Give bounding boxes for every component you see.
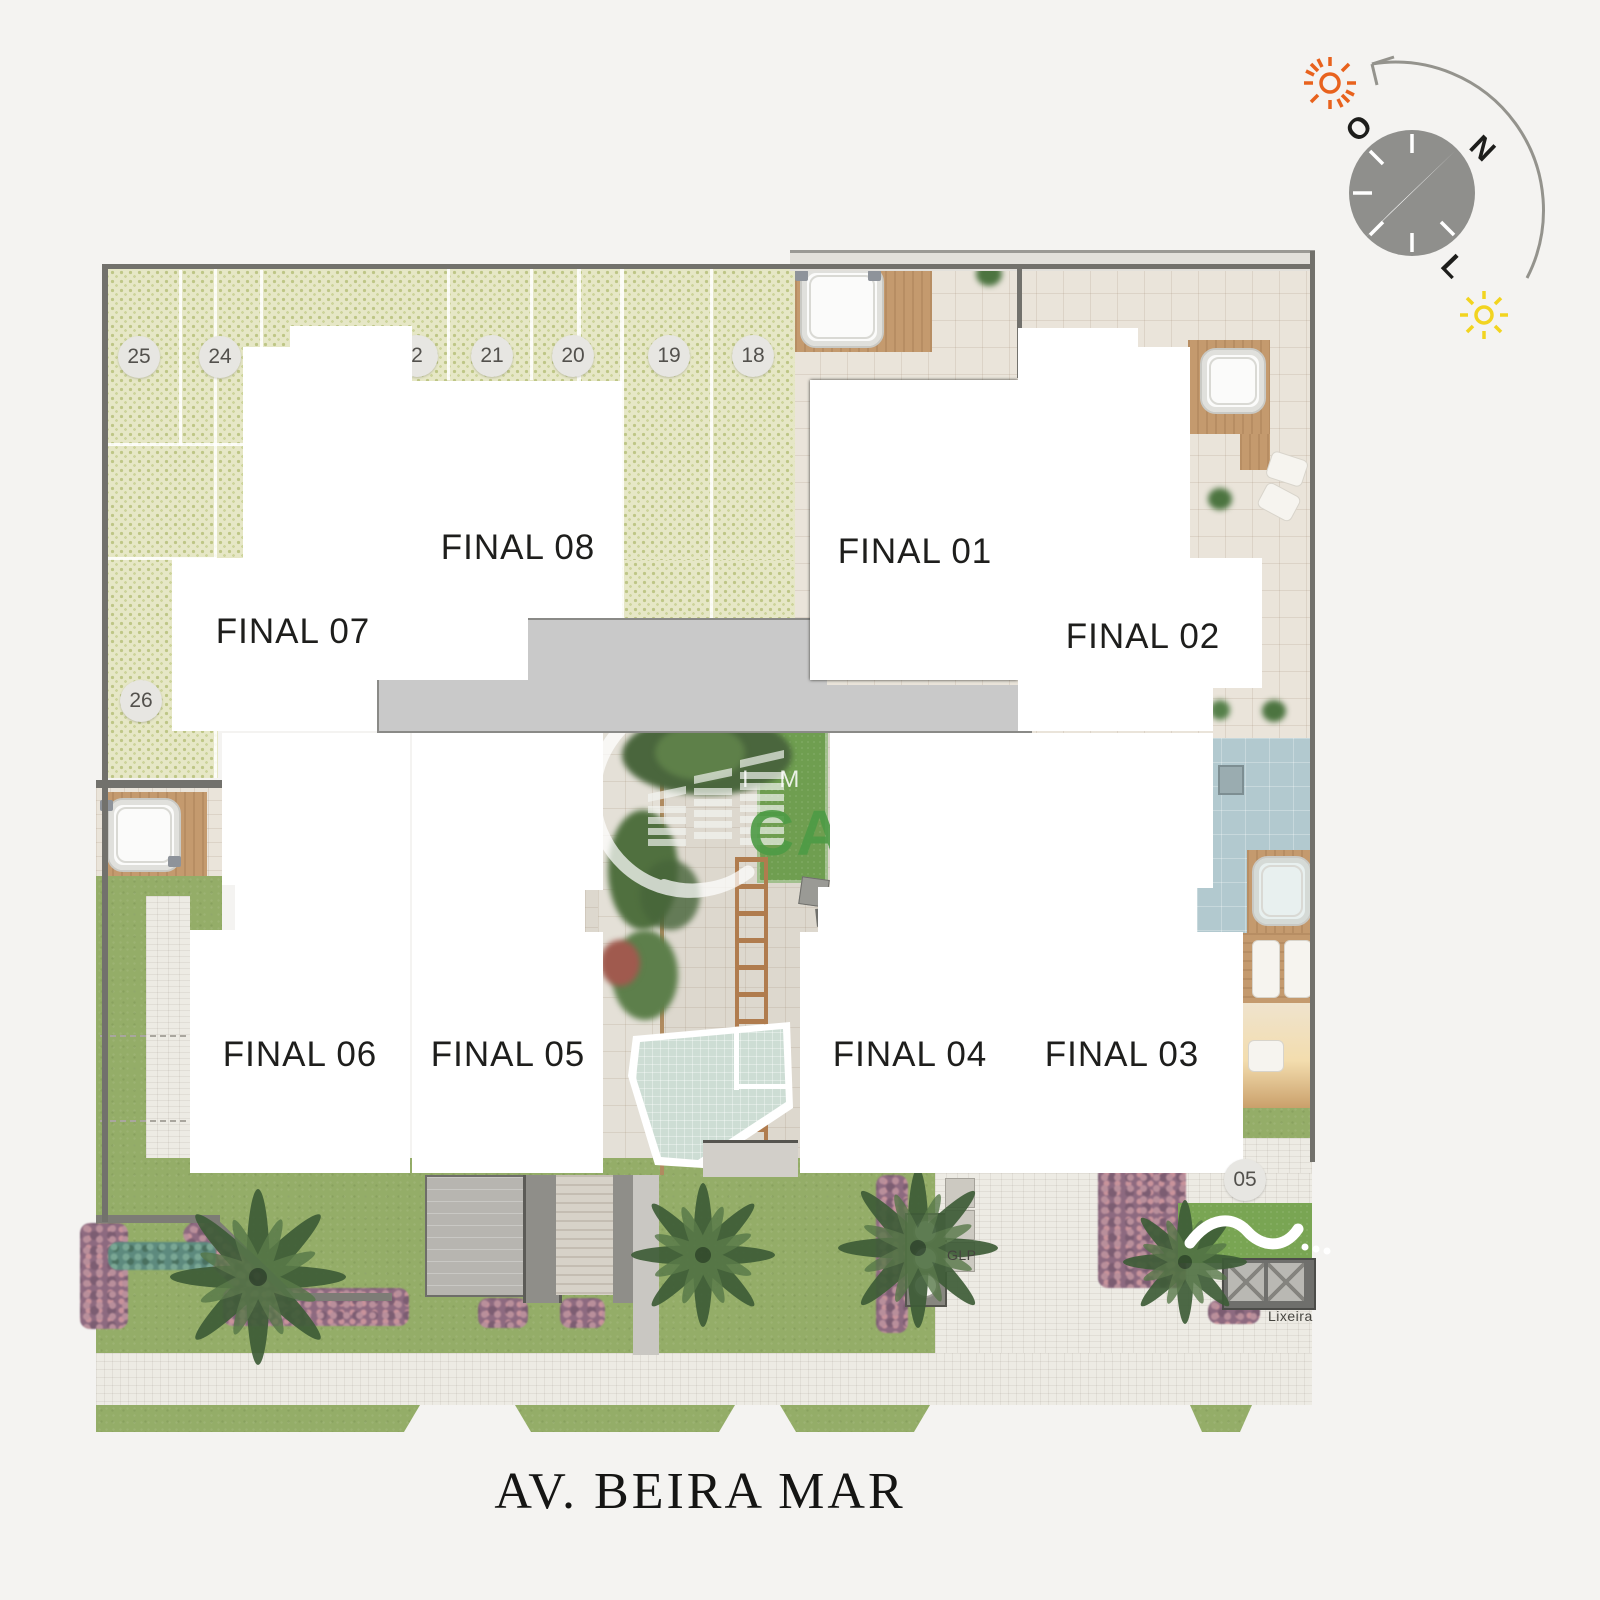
parking-spot-26: 26 (120, 680, 162, 722)
retaining-wall (288, 1293, 392, 1301)
garden-trees (655, 725, 745, 780)
pool-divider (734, 1024, 739, 1090)
verge-grass (1190, 1405, 1252, 1432)
parking-spot-21: 21 (471, 335, 513, 377)
parking-spot-18: 18 (732, 335, 774, 377)
stall-line (710, 268, 713, 625)
compass-north-label: N (1462, 129, 1501, 169)
hot-tub-spa (1252, 856, 1312, 926)
lounger (1284, 940, 1312, 998)
hot-tub-right (1200, 348, 1266, 414)
stall-line (530, 268, 533, 380)
left-path (146, 896, 190, 1158)
trash-label: Lixeira (1268, 1308, 1313, 1324)
verge-grass (780, 1405, 930, 1432)
parking-spot-24: 24 (199, 336, 241, 378)
unit-final-03 (1020, 733, 1243, 1173)
parking-area-right (595, 560, 795, 625)
rotation-arrowhead (1372, 57, 1394, 85)
ramp-right (556, 1175, 613, 1295)
unit-label-final-05: FINAL 05 (431, 1035, 586, 1075)
verge-grass (515, 1405, 735, 1432)
unit-label-final-04: FINAL 04 (833, 1035, 988, 1075)
garden-flowers (600, 940, 640, 986)
trash-slab (1228, 1263, 1264, 1301)
gas-tank (913, 1246, 938, 1271)
tub-pad (795, 270, 808, 281)
site-border-top (102, 264, 1315, 269)
hedge (478, 1298, 528, 1328)
unit-label-final-06: FINAL 06 (223, 1035, 378, 1075)
unit-label-final-01: FINAL 01 (838, 532, 993, 572)
unit-label-final-07: FINAL 07 (216, 612, 371, 652)
verge-grass (96, 1405, 420, 1432)
parking-spot-05: 05 (1224, 1159, 1266, 1201)
tub-pad (168, 856, 181, 867)
rotation-arc (1372, 62, 1543, 278)
gas-label: GLP (947, 1247, 977, 1263)
compass-west-label: O (1339, 109, 1379, 150)
court-dashed-line (100, 1120, 186, 1122)
lounge-grass-strip (1243, 1106, 1312, 1138)
plant (1262, 700, 1286, 722)
unit-final-06 (190, 733, 410, 1173)
unit-final-01 (810, 380, 1018, 680)
slab (945, 1178, 975, 1208)
pool-divider (734, 1084, 792, 1089)
gas-tank (913, 1273, 938, 1298)
lounge-bench (1248, 1040, 1284, 1072)
hedge (80, 1223, 128, 1329)
gas-tank (913, 1219, 938, 1244)
site-border-right (1310, 251, 1315, 1162)
plant (1208, 488, 1232, 510)
entry-walk (633, 1175, 659, 1355)
unit-label-final-02: FINAL 02 (1066, 617, 1221, 657)
bench-green (1178, 1203, 1312, 1263)
wall-left-court (96, 780, 222, 788)
unit-final-05 (412, 733, 603, 1173)
slab (945, 1210, 975, 1240)
sidewalk (96, 1353, 1312, 1405)
unit-label-final-08: FINAL 08 (441, 528, 596, 568)
compass-east-label: L (1434, 249, 1471, 286)
compass-dial (1349, 130, 1475, 256)
tub-pad (868, 270, 881, 281)
trash-slab (1268, 1263, 1304, 1301)
stall-line (179, 270, 182, 445)
teal-bushes (108, 1242, 216, 1270)
parking-spot-25: 25 (118, 336, 160, 378)
court-dashed-line (100, 1035, 186, 1037)
hedge (876, 1175, 908, 1333)
sun-icon-yellow (1460, 291, 1508, 339)
watermark-text-bottom: CA (748, 796, 844, 870)
parking-spot-20: 20 (552, 335, 594, 377)
unit-label-final-03: FINAL 03 (1045, 1035, 1200, 1075)
retaining-wall (96, 1215, 220, 1223)
garden-bushes (640, 860, 700, 930)
compass-needle (1363, 150, 1456, 240)
site-border-left (102, 264, 108, 1222)
street-label: AV. BEIRA MAR (494, 1462, 905, 1521)
stall-line (447, 268, 450, 380)
entrance-porch (703, 1140, 798, 1177)
sun-icon-orange (1304, 57, 1356, 109)
unit-final-04 (800, 733, 1020, 1173)
hedge (560, 1298, 605, 1328)
site-plan: GLP Lixeira (0, 0, 1600, 1600)
ramp-left (425, 1175, 527, 1297)
parking-spot-19: 19 (648, 335, 690, 377)
lounger (1252, 940, 1280, 998)
deck-right-upper-step (1240, 434, 1270, 470)
spa-shower (1218, 765, 1244, 795)
